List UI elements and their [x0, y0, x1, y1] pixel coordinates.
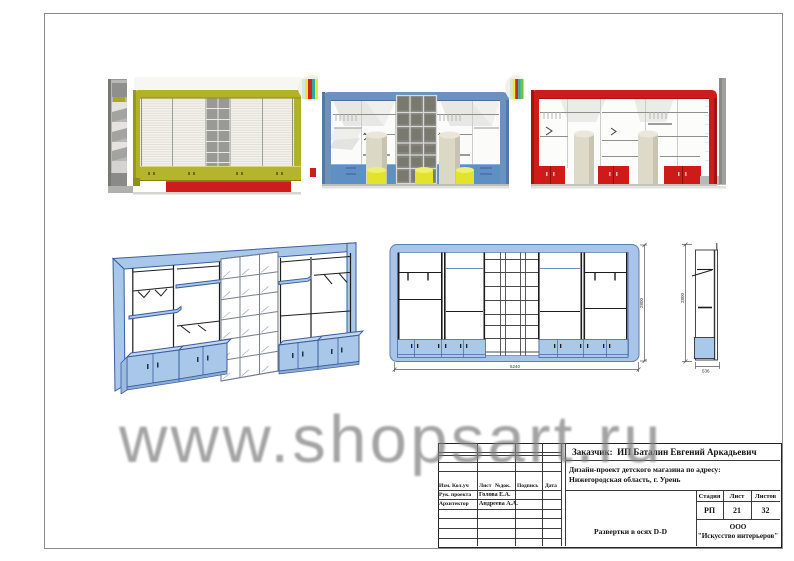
svg-text:6240: 6240: [510, 364, 521, 369]
svg-text:2800: 2800: [639, 297, 644, 308]
svg-text:536: 536: [702, 369, 710, 374]
svg-text:2800: 2800: [680, 292, 685, 303]
